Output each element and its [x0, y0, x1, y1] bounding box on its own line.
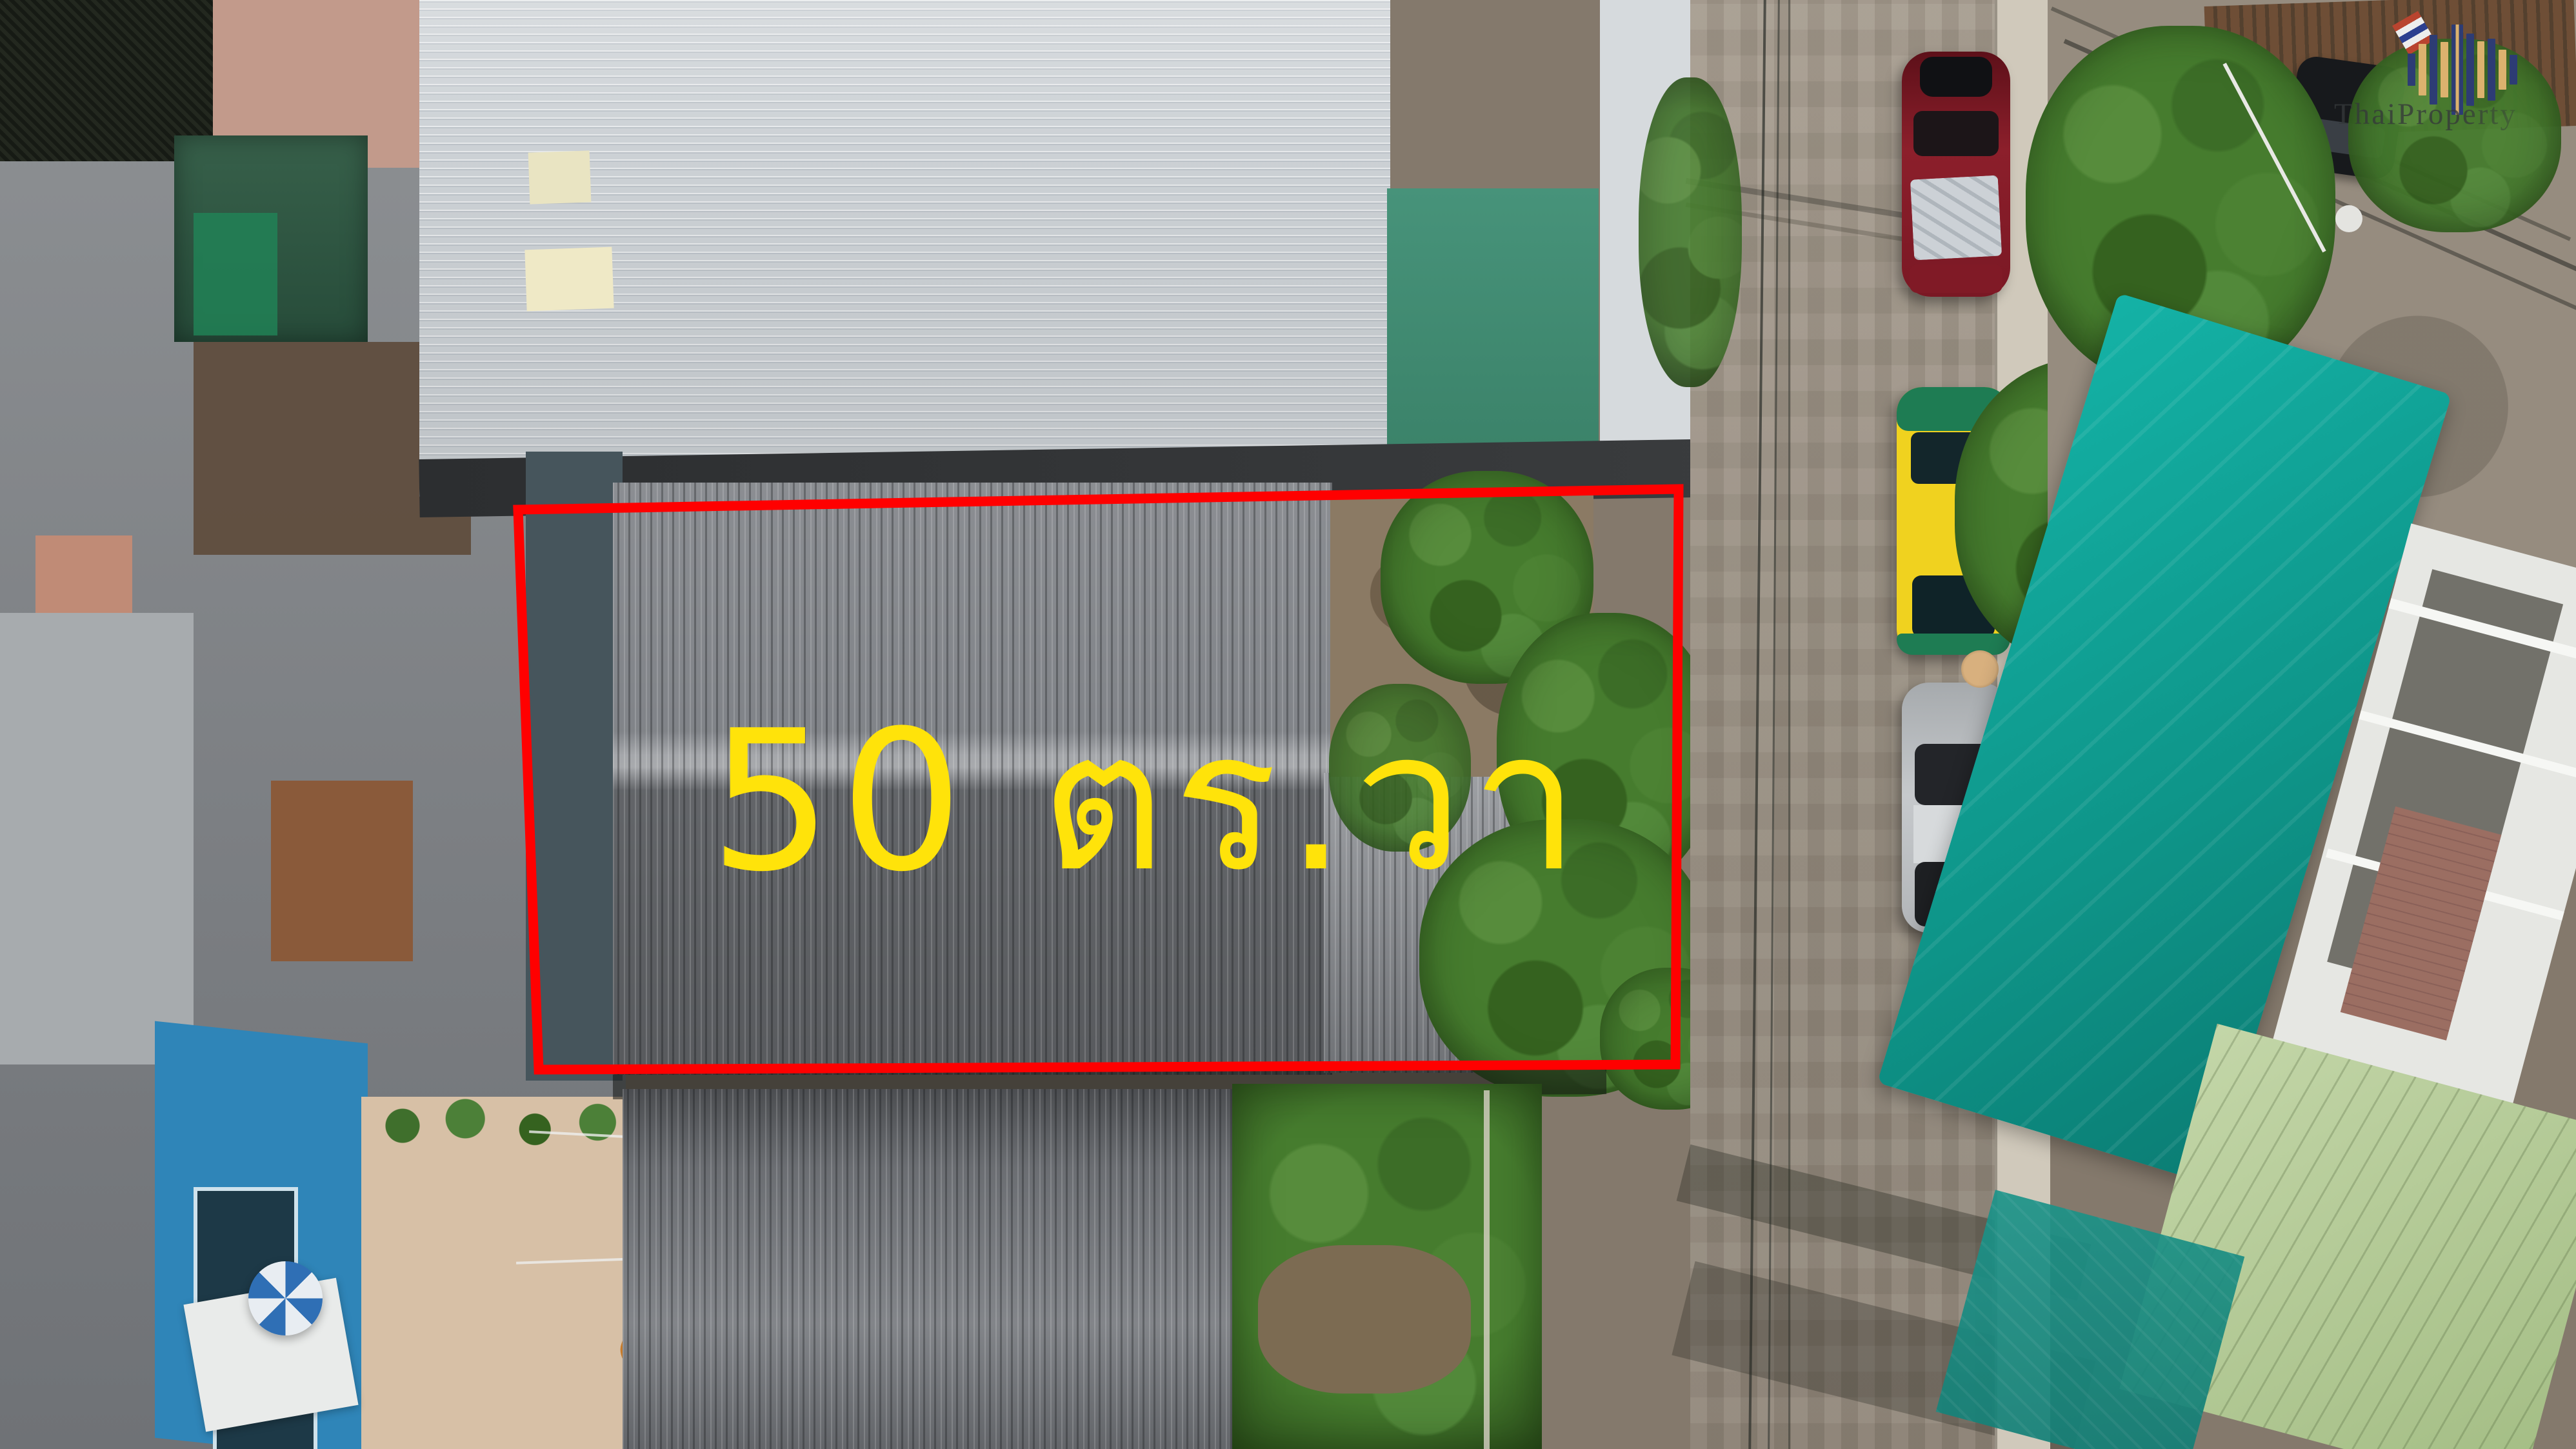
logo-bar [2419, 44, 2426, 95]
watermark: ThaiProperty [2334, 25, 2576, 141]
logo-bar [2488, 39, 2495, 101]
watermark-text: ThaiProperty [2334, 97, 2576, 135]
logo-bar [2441, 42, 2448, 97]
aerial-photo: 50 ตร.วา ThaiProperty [0, 0, 2576, 1449]
logo-bar [2466, 34, 2474, 106]
logo-bar [2408, 54, 2415, 86]
logo-bar [2510, 55, 2517, 85]
logo-bar [2477, 41, 2485, 98]
area-size-label: 50 ตร.วา [645, 684, 1652, 916]
logo-bar [2499, 50, 2506, 90]
logo-bar [2430, 35, 2437, 105]
